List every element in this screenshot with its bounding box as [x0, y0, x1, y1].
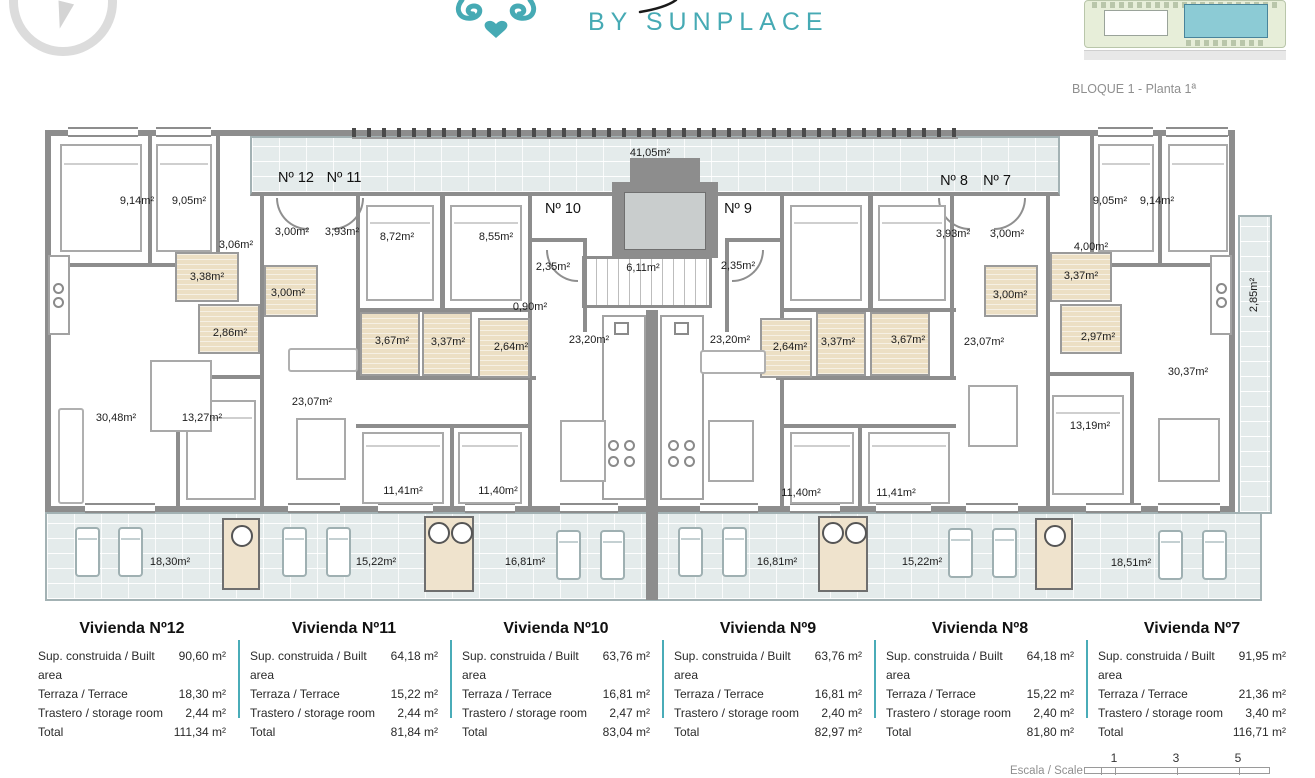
washer-icon [822, 522, 844, 544]
terrace-area-label: 18,51m² [1111, 557, 1151, 569]
washer-icon [1044, 525, 1066, 547]
legend-row-value: 18,30 m² [179, 685, 226, 704]
washer-icon [845, 522, 867, 544]
room-area-label: 4,00m² [1074, 241, 1108, 253]
room-area-label: 13,19m² [1070, 420, 1110, 432]
bed-furniture [878, 205, 946, 301]
dining-table-furniture [1158, 418, 1220, 482]
hob-icon [1216, 297, 1227, 308]
kitchen-counter [1210, 255, 1232, 335]
room-area-label: 11,41m² [383, 485, 423, 497]
window [1086, 503, 1141, 513]
legend-row-label: Trastero / storage room [1098, 704, 1245, 723]
legend-row-value: 2,44 m² [185, 704, 226, 723]
dining-table-furniture [968, 385, 1018, 447]
room-area-label: 9,14m² [1140, 195, 1174, 207]
hob-icon [668, 440, 679, 451]
wall [858, 424, 862, 512]
floorplan-sheet: BY SUNPLACE BLOQUE 1 - Planta 1ª [0, 0, 1315, 778]
room-area-label: 3,00m² [271, 287, 305, 299]
legend-row-label: Terraza / Terrace [38, 685, 179, 704]
legend-row-value: 116,71 m² [1233, 723, 1286, 742]
sunplace-logo-icon [452, 0, 540, 40]
sun-lounger-furniture [992, 528, 1017, 578]
unit-label-10: Nº 10 [545, 201, 581, 217]
legend-row-value: 15,22 m² [1027, 685, 1074, 704]
legend-row-value: 2,47 m² [609, 704, 650, 723]
hob-icon [624, 456, 635, 467]
room-area-label: 3,67m² [375, 335, 409, 347]
room-area-label: 2,86m² [213, 327, 247, 339]
site-plan-thumbnail [1078, 0, 1294, 64]
washer-icon [428, 522, 450, 544]
legend-title: Vivienda Nº12 [38, 620, 226, 638]
sun-lounger-furniture [118, 527, 143, 577]
legend-title: Vivienda Nº7 [1098, 620, 1286, 638]
legend-row-label: Terraza / Terrace [250, 685, 391, 704]
window [378, 503, 433, 513]
scale-number: 3 [1173, 751, 1180, 765]
window [156, 127, 211, 137]
terrace-area-label: 2,85m² [1248, 278, 1260, 312]
elevator-car [624, 192, 706, 250]
kitchen-counter [48, 255, 70, 335]
wall [780, 424, 956, 428]
legend-divider [874, 640, 876, 718]
scale-bar [1084, 767, 1270, 774]
legend-row-value: 81,80 m² [1027, 723, 1074, 742]
legend-row-label: Terraza / Terrace [886, 685, 1027, 704]
room-area-label: 3,93m² [325, 226, 359, 238]
hob-icon [53, 297, 64, 308]
legend-row-value: 21,36 m² [1239, 685, 1286, 704]
legend-row-label: Total [886, 723, 1027, 742]
storage-room [1035, 518, 1073, 590]
hob-icon [608, 456, 619, 467]
bed-furniture [790, 205, 862, 301]
legend-unit-9: Vivienda Nº9 Sup. construida / Built are… [674, 620, 862, 742]
wall [440, 196, 445, 310]
room-area-label: 3,37m² [1064, 270, 1098, 282]
sun-lounger-furniture [75, 527, 100, 577]
room-area-label: 2,97m² [1081, 331, 1115, 343]
room-area-label: 3,37m² [821, 336, 855, 348]
legend-row-value: 81,84 m² [391, 723, 438, 742]
hob-icon [684, 456, 695, 467]
sun-lounger-furniture [326, 527, 351, 577]
wall [1048, 372, 1134, 376]
room-area-label: 3,00m² [275, 226, 309, 238]
legend-row-label: Trastero / storage room [886, 704, 1033, 723]
scale-number: 1 [1111, 751, 1118, 765]
room-area-label: 11,40m² [781, 487, 821, 499]
corridor-railing [352, 128, 958, 139]
room-area-label: 23,20m² [710, 334, 750, 346]
legend-row-value: 2,40 m² [821, 704, 862, 723]
room-area-label: 23,07m² [292, 396, 332, 408]
washer-icon [231, 525, 253, 547]
legend-row-value: 91,95 m² [1239, 647, 1286, 685]
legend-row-label: Total [38, 723, 174, 742]
legend-row-label: Terraza / Terrace [674, 685, 815, 704]
window [288, 503, 340, 513]
window [790, 503, 840, 513]
legend-row-value: 63,76 m² [603, 647, 650, 685]
room-area-label: 3,67m² [891, 334, 925, 346]
wall [646, 310, 658, 600]
legend-row-label: Trastero / storage room [462, 704, 609, 723]
unit-label-9: Nº 9 [724, 201, 752, 217]
sofa-furniture [700, 350, 766, 374]
legend-row-value: 3,40 m² [1245, 704, 1286, 723]
legend-row-value: 64,18 m² [1027, 647, 1074, 685]
room-area-label: 2,35m² [721, 260, 755, 272]
legend-unit-11: Vivienda Nº11 Sup. construida / Built ar… [250, 620, 438, 742]
sink-icon [614, 322, 629, 335]
terrace-area-label: 18,30m² [150, 556, 190, 568]
room-area-label: 8,72m² [380, 231, 414, 243]
bed-furniture [1168, 144, 1228, 252]
side-terrace [1238, 215, 1272, 514]
wall [725, 238, 784, 242]
legend-divider [238, 640, 240, 718]
window [465, 503, 515, 513]
legend-divider [662, 640, 664, 718]
sun-lounger-furniture [1202, 530, 1227, 580]
washer-icon [451, 522, 473, 544]
room-area-label: 3,06m² [219, 239, 253, 251]
legend-unit-7: Vivienda Nº7 Sup. construida / Built are… [1098, 620, 1286, 742]
legend-row-label: Sup. construida / Built area [462, 647, 603, 685]
bed-furniture [1052, 395, 1124, 495]
sun-lounger-furniture [1158, 530, 1183, 580]
storage-room [424, 516, 474, 592]
storage-room [222, 518, 260, 590]
legend-unit-8: Vivienda Nº8 Sup. construida / Built are… [886, 620, 1074, 742]
hob-icon [624, 440, 635, 451]
sofa-furniture [58, 408, 84, 504]
room-area-label: 9,14m² [120, 195, 154, 207]
legend-row-value: 82,97 m² [815, 723, 862, 742]
legend-divider [450, 640, 452, 718]
room-area-label: 3,00m² [993, 289, 1027, 301]
room-area-label: 3,37m² [431, 336, 465, 348]
room-area-label: 30,48m² [96, 412, 136, 424]
unit-label-7: Nº 7 [983, 173, 1011, 189]
block-caption: BLOQUE 1 - Planta 1ª [1072, 82, 1196, 96]
legend-row-label: Sup. construida / Built area [38, 647, 179, 685]
unit-label-11: Nº 11 [327, 170, 362, 186]
scale-number: 5 [1235, 751, 1242, 765]
wall [528, 238, 587, 242]
sun-lounger-furniture [678, 527, 703, 577]
room-area-label: 2,35m² [536, 261, 570, 273]
room-area-label: 23,20m² [569, 334, 609, 346]
unit-label-8: Nº 8 [940, 173, 968, 189]
room-area-label: 41,05m² [630, 147, 670, 159]
window [560, 503, 618, 513]
legend-row-label: Terraza / Terrace [1098, 685, 1239, 704]
legend-row-value: 63,76 m² [815, 647, 862, 685]
sun-lounger-furniture [948, 528, 973, 578]
window [68, 127, 138, 137]
legend-row-label: Total [1098, 723, 1233, 742]
scale-tick [1239, 768, 1240, 775]
legend-row-label: Trastero / storage room [38, 704, 185, 723]
room-area-label: 8,55m² [479, 231, 513, 243]
site-road [1084, 50, 1286, 60]
legend-row-value: 16,81 m² [603, 685, 650, 704]
wall [1046, 196, 1050, 512]
legend-row-label: Sup. construida / Built area [674, 647, 815, 685]
hob-icon [1216, 283, 1227, 294]
window [700, 503, 758, 513]
hob-icon [668, 456, 679, 467]
room-area-label: 2,64m² [494, 341, 528, 353]
legend-row-value: 2,44 m² [397, 704, 438, 723]
scale-tick [1115, 768, 1116, 775]
wall [583, 238, 587, 332]
dining-table-furniture [560, 420, 606, 482]
terrace-area-label: 15,22m² [902, 556, 942, 568]
room-area-label: 0,90m² [513, 301, 547, 313]
wall [725, 238, 729, 332]
legend-row-label: Total [674, 723, 815, 742]
site-parking-strip-2 [1186, 40, 1266, 46]
legend-title: Vivienda Nº8 [886, 620, 1074, 638]
hob-icon [684, 440, 695, 451]
legend-row-label: Sup. construida / Built area [250, 647, 391, 685]
hob-icon [608, 440, 619, 451]
site-building-2 [1104, 10, 1168, 36]
sun-lounger-furniture [600, 530, 625, 580]
legend-divider [1086, 640, 1088, 718]
scale-label: Escala / Scale [1010, 765, 1083, 777]
room-area-label: 9,05m² [1093, 195, 1127, 207]
sun-lounger-furniture [722, 527, 747, 577]
room-area-label: 23,07m² [964, 336, 1004, 348]
sink-icon [674, 322, 689, 335]
legend-row-value: 111,34 m² [174, 723, 226, 742]
room-area-label: 13,27m² [182, 412, 222, 424]
kitchen-counter [660, 315, 704, 500]
wall [868, 196, 873, 310]
wall [356, 424, 532, 428]
legend-row-label: Terraza / Terrace [462, 685, 603, 704]
window [1166, 127, 1228, 137]
room-area-label: 3,00m² [990, 228, 1024, 240]
terrace-area-label: 16,81m² [505, 556, 545, 568]
sun-lounger-furniture [556, 530, 581, 580]
sofa-furniture [288, 348, 358, 372]
legend-title: Vivienda Nº9 [674, 620, 862, 638]
scale-tick [1177, 768, 1178, 775]
legend-row-value: 90,60 m² [179, 647, 226, 685]
window [966, 503, 1018, 513]
room-area-label: 2,64m² [773, 341, 807, 353]
legend-row-label: Trastero / storage room [250, 704, 397, 723]
legend-unit-12: Vivienda Nº12 Sup. construida / Built ar… [38, 620, 226, 742]
hob-icon [53, 283, 64, 294]
bathroom [1060, 304, 1122, 354]
room-area-label: 30,37m² [1168, 366, 1208, 378]
site-building-1-highlight [1184, 4, 1268, 38]
room-area-label: 11,40m² [478, 485, 518, 497]
legend-row-value: 15,22 m² [391, 685, 438, 704]
unit-label-12: Nº 12 [278, 170, 314, 186]
wall [260, 196, 264, 512]
window [85, 503, 155, 513]
legend-row-value: 16,81 m² [815, 685, 862, 704]
storage-room [818, 516, 868, 592]
legend-row-value: 64,18 m² [391, 647, 438, 685]
room-area-label: 9,05m² [172, 195, 206, 207]
window [1158, 503, 1220, 513]
legend-row-label: Total [462, 723, 603, 742]
window [1098, 127, 1153, 137]
wall [1130, 372, 1134, 512]
dining-table-furniture [708, 420, 754, 482]
legend-title: Vivienda Nº11 [250, 620, 438, 638]
legend-row-label: Sup. construida / Built area [1098, 647, 1239, 685]
legend-row-value: 2,40 m² [1033, 704, 1074, 723]
window [876, 503, 931, 513]
scale-tick [1101, 768, 1102, 775]
terrace-area-label: 15,22m² [356, 556, 396, 568]
brand-wordmark: BY SUNPLACE [588, 8, 829, 37]
bed-furniture [450, 205, 522, 301]
legend-row-value: 83,04 m² [603, 723, 650, 742]
room-area-label: 3,38m² [190, 271, 224, 283]
bed-furniture [366, 205, 434, 301]
room-area-label: 6,11m² [626, 262, 659, 274]
legend-unit-10: Vivienda Nº10 Sup. construida / Built ar… [462, 620, 650, 742]
terrace-area-label: 16,81m² [757, 556, 797, 568]
room-area-label: 11,41m² [876, 487, 916, 499]
dining-table-furniture [296, 418, 346, 480]
sun-lounger-furniture [282, 527, 307, 577]
legend-title: Vivienda Nº10 [462, 620, 650, 638]
legend-row-label: Trastero / storage room [674, 704, 821, 723]
wall [450, 424, 454, 512]
room-area-label: 3,93m² [936, 228, 970, 240]
legend-row-label: Sup. construida / Built area [886, 647, 1027, 685]
legend-row-label: Total [250, 723, 391, 742]
